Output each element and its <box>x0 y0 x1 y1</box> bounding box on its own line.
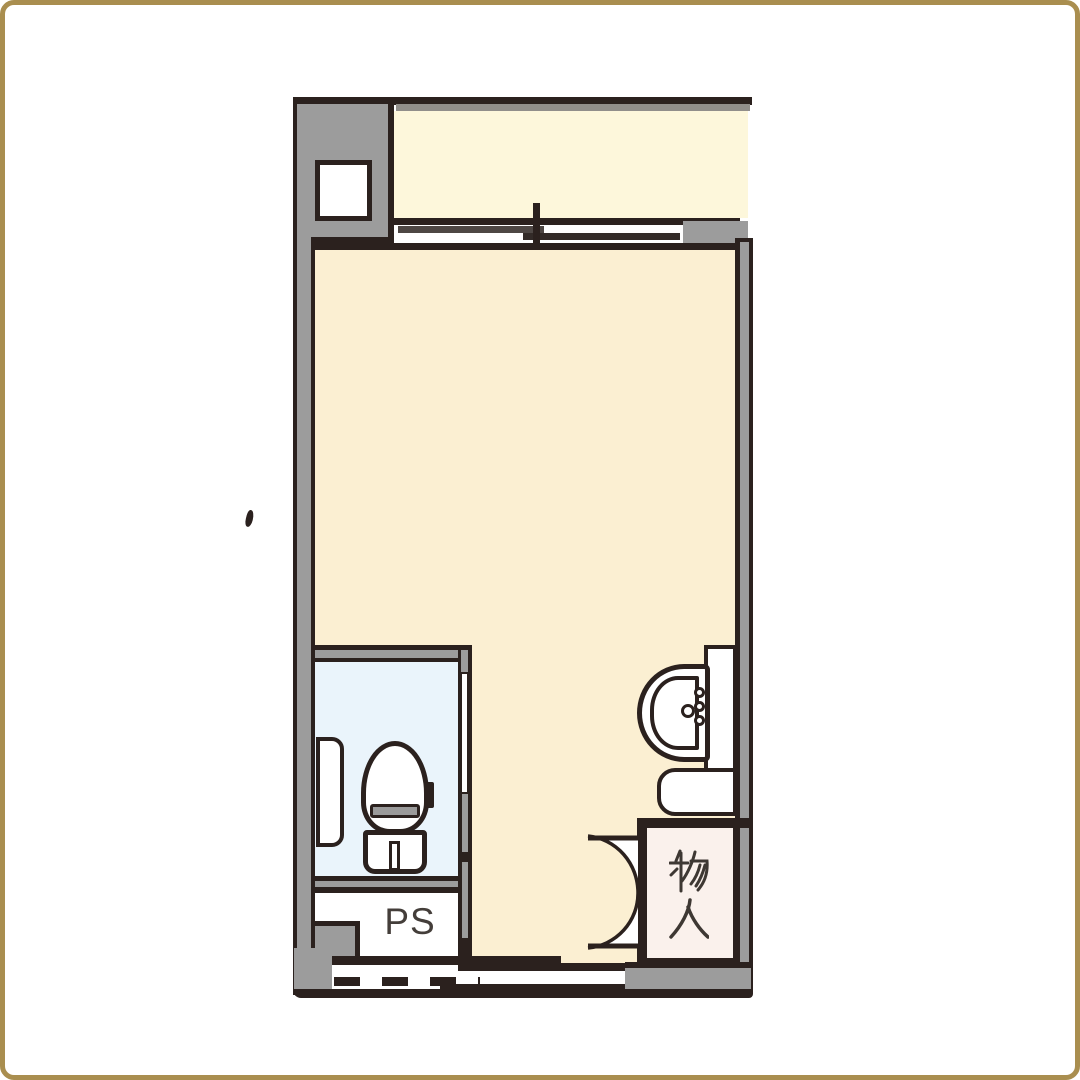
faucet-dot-3 <box>694 715 705 726</box>
entrance-opening <box>462 971 625 985</box>
toilet-side-button <box>424 782 434 808</box>
storage-label-glyph-mono <box>669 849 709 893</box>
right-wall <box>740 242 749 989</box>
storage-double-door <box>585 833 643 953</box>
toilet-bowl <box>361 741 429 834</box>
toilet-sliding-door-opening <box>462 674 467 792</box>
sliding-window-right-panel <box>523 233 680 240</box>
main-room-bottom-line <box>458 963 640 971</box>
storage-label-glyph-iri <box>669 897 709 941</box>
main-room-floor-upper <box>315 243 735 653</box>
sliding-window-left-panel <box>398 226 544 233</box>
balcony-rail-line <box>396 104 750 111</box>
faucet-spout-dot <box>681 704 695 718</box>
toilet-seat-bar <box>370 804 420 818</box>
toilet-door-jamb <box>461 650 468 672</box>
toilet-flush-mark <box>389 841 400 871</box>
low-cabinet <box>657 768 737 816</box>
ps-notch-right-edge <box>355 921 360 956</box>
faucet-dot-2 <box>694 701 705 712</box>
bottom-left-wall-corner <box>294 948 332 992</box>
toilet-sliding-door-panel-b <box>462 862 468 938</box>
main-room-top-line <box>311 243 740 250</box>
floor-plan-canvas: PS 物入 <box>0 0 1080 1080</box>
toilet-cabinet <box>316 737 344 847</box>
faucet-dot-1 <box>694 687 705 698</box>
toilet-sliding-door-panel-a <box>462 794 468 852</box>
pipe-space-label: PS <box>368 901 452 943</box>
bottom-right-wall <box>625 968 751 990</box>
bottom-wall-line <box>293 989 753 998</box>
balcony-floor <box>394 111 748 218</box>
meter-box <box>315 160 372 221</box>
toilet-top-wall-core <box>315 650 462 658</box>
left-wall <box>297 104 311 994</box>
